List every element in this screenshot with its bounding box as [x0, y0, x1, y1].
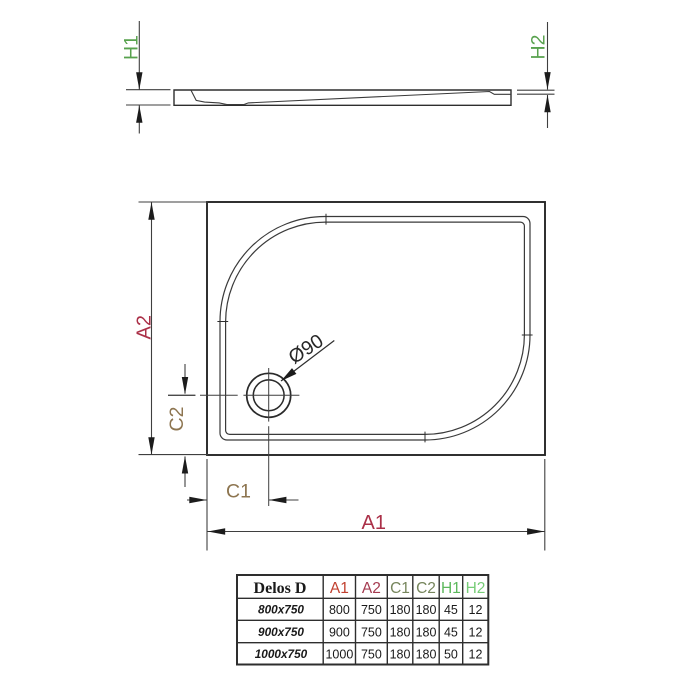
svg-text:1000: 1000	[325, 648, 353, 662]
svg-text:C1: C1	[226, 481, 251, 503]
svg-text:Delos D: Delos D	[254, 580, 307, 597]
svg-text:1000x750: 1000x750	[255, 647, 308, 661]
svg-text:45: 45	[444, 626, 458, 640]
svg-text:900: 900	[329, 626, 350, 640]
svg-text:750: 750	[361, 648, 382, 662]
svg-text:C2: C2	[166, 407, 188, 432]
svg-text:800x750: 800x750	[258, 603, 304, 617]
svg-text:180: 180	[390, 603, 411, 617]
svg-text:C2: C2	[416, 580, 436, 597]
svg-text:180: 180	[416, 648, 437, 662]
svg-text:50: 50	[444, 648, 458, 662]
svg-text:12: 12	[469, 626, 483, 640]
svg-text:A1: A1	[362, 512, 386, 534]
svg-text:750: 750	[361, 603, 382, 617]
svg-text:180: 180	[416, 626, 437, 640]
svg-text:180: 180	[416, 603, 437, 617]
svg-text:H2: H2	[466, 580, 486, 597]
svg-text:C1: C1	[390, 580, 410, 597]
svg-text:180: 180	[390, 626, 411, 640]
svg-text:12: 12	[469, 603, 483, 617]
svg-text:900x750: 900x750	[258, 625, 304, 639]
svg-text:H2: H2	[527, 35, 549, 60]
svg-text:12: 12	[469, 648, 483, 662]
svg-text:A2: A2	[134, 315, 156, 339]
svg-text:Ø90: Ø90	[285, 330, 328, 369]
svg-text:H1: H1	[120, 35, 142, 60]
svg-text:A2: A2	[362, 580, 381, 597]
svg-text:180: 180	[390, 648, 411, 662]
svg-text:H1: H1	[441, 580, 461, 597]
svg-text:45: 45	[444, 603, 458, 617]
svg-text:A1: A1	[330, 580, 349, 597]
svg-text:750: 750	[361, 626, 382, 640]
svg-text:800: 800	[329, 603, 350, 617]
